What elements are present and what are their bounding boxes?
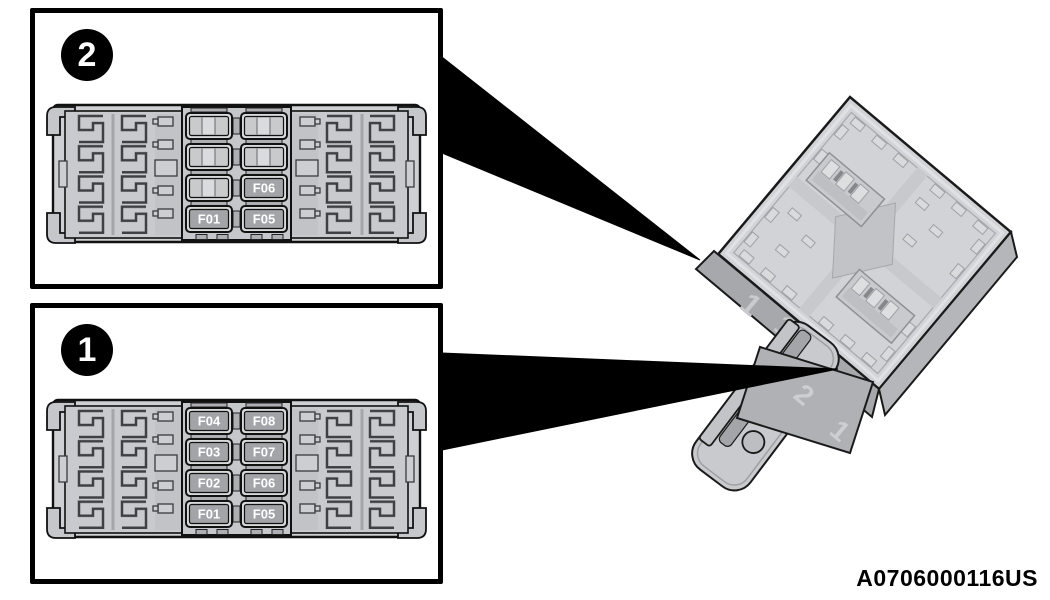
module-top-face: [718, 97, 1011, 389]
module-and-pointers: 1 1 2 1: [0, 0, 1050, 600]
pointer-wedge-2: [442, 57, 700, 260]
part-code-label: A0706000116US: [856, 565, 1038, 592]
fuse-module-3d: 1 1 2 1: [684, 97, 1017, 498]
figure-canvas: 2: [0, 0, 1050, 600]
